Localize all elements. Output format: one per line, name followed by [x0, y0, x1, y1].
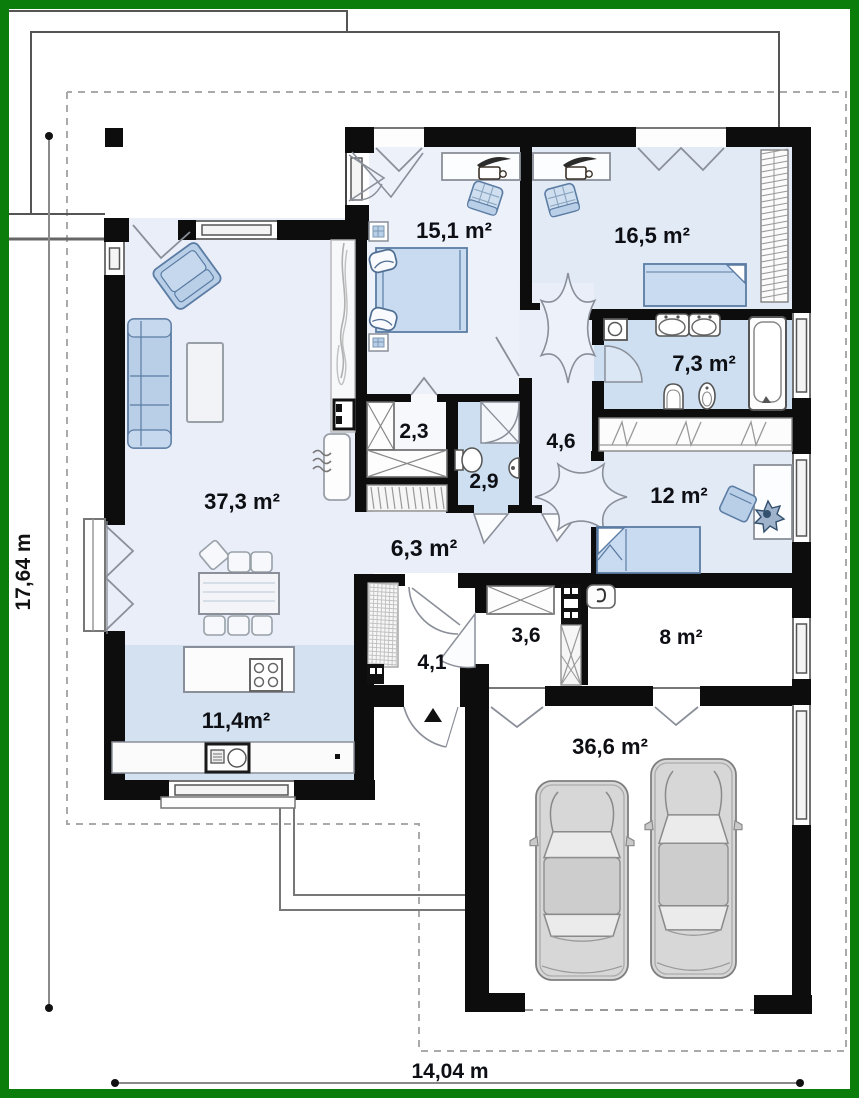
svg-text:17,64 m: 17,64 m: [12, 533, 35, 610]
svg-text:8 m²: 8 m²: [659, 626, 702, 649]
svg-text:14,04 m: 14,04 m: [411, 1060, 488, 1083]
svg-text:16,5 m²: 16,5 m²: [614, 223, 690, 248]
svg-text:15,1 m²: 15,1 m²: [416, 218, 492, 243]
svg-text:7,3 m²: 7,3 m²: [672, 351, 736, 376]
svg-text:36,6 m²: 36,6 m²: [572, 734, 648, 759]
svg-text:4,6: 4,6: [546, 430, 575, 453]
svg-text:2,3: 2,3: [399, 420, 428, 443]
svg-text:11,4m²: 11,4m²: [202, 708, 271, 733]
svg-text:37,3 m²: 37,3 m²: [204, 489, 280, 514]
svg-text:6,3 m²: 6,3 m²: [391, 535, 458, 561]
svg-text:4,1: 4,1: [417, 651, 447, 674]
svg-text:3,6: 3,6: [511, 624, 540, 647]
svg-text:12 m²: 12 m²: [650, 483, 707, 508]
svg-text:2,9: 2,9: [469, 470, 498, 493]
